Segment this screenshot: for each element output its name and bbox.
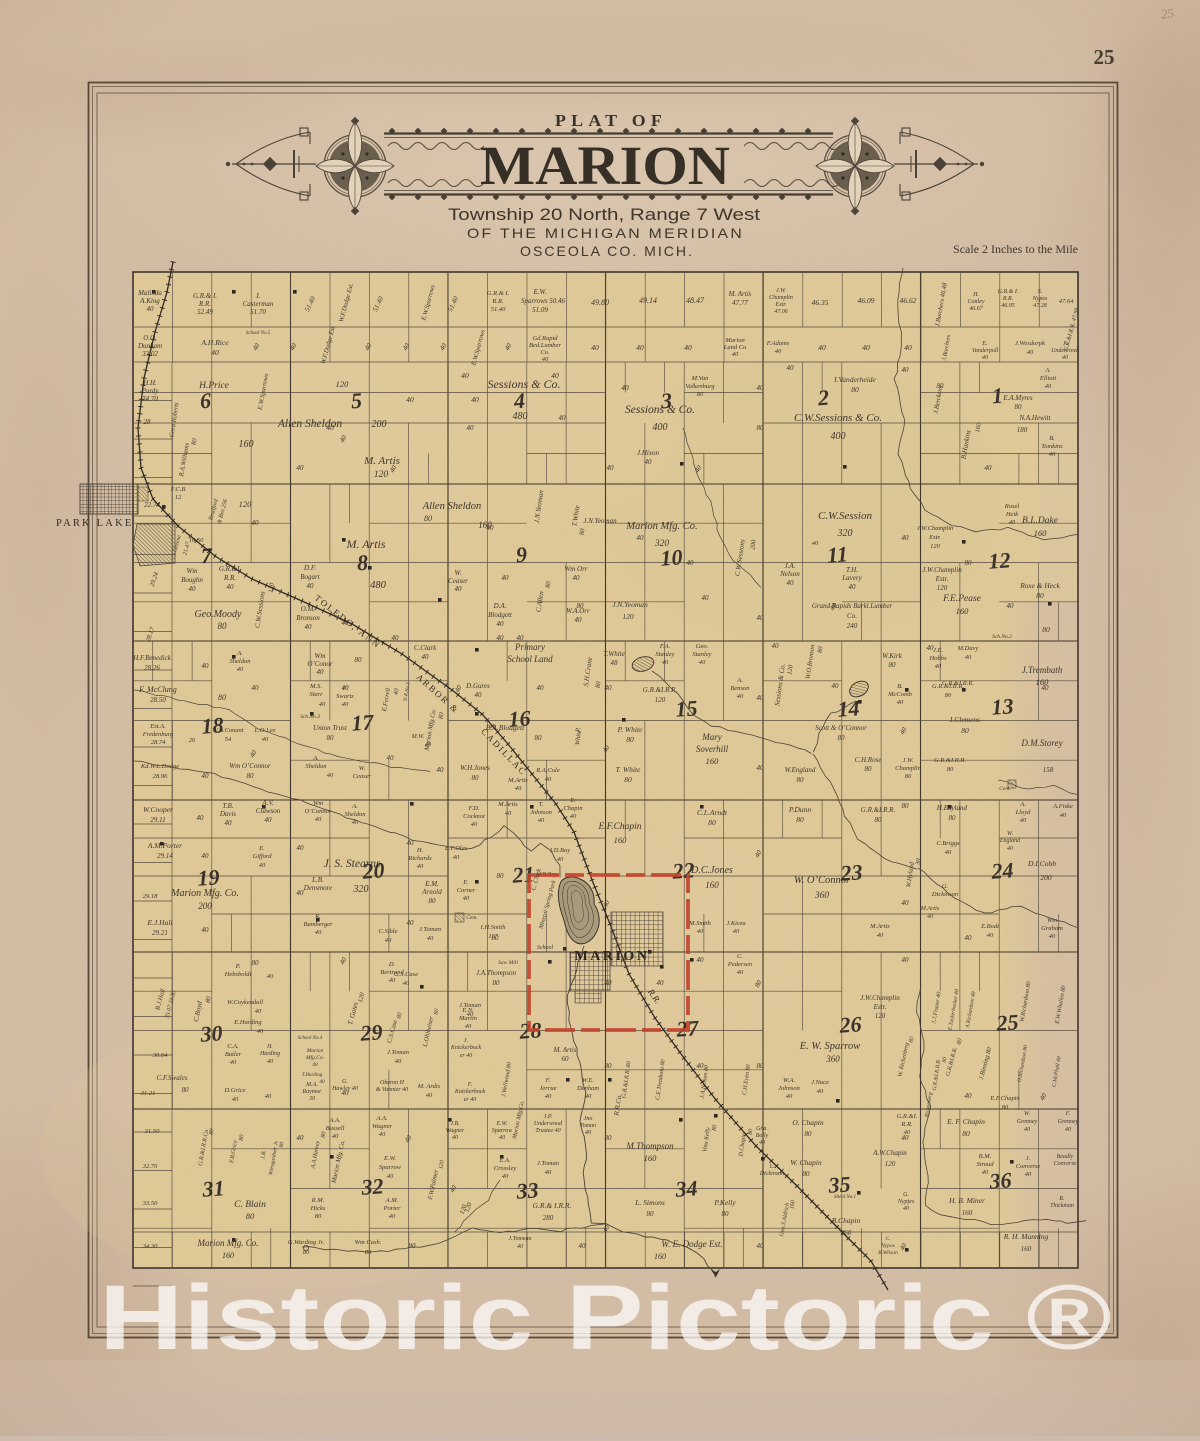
svg-text:Historic Pictoric ®: Historic Pictoric ® <box>99 1267 1112 1369</box>
